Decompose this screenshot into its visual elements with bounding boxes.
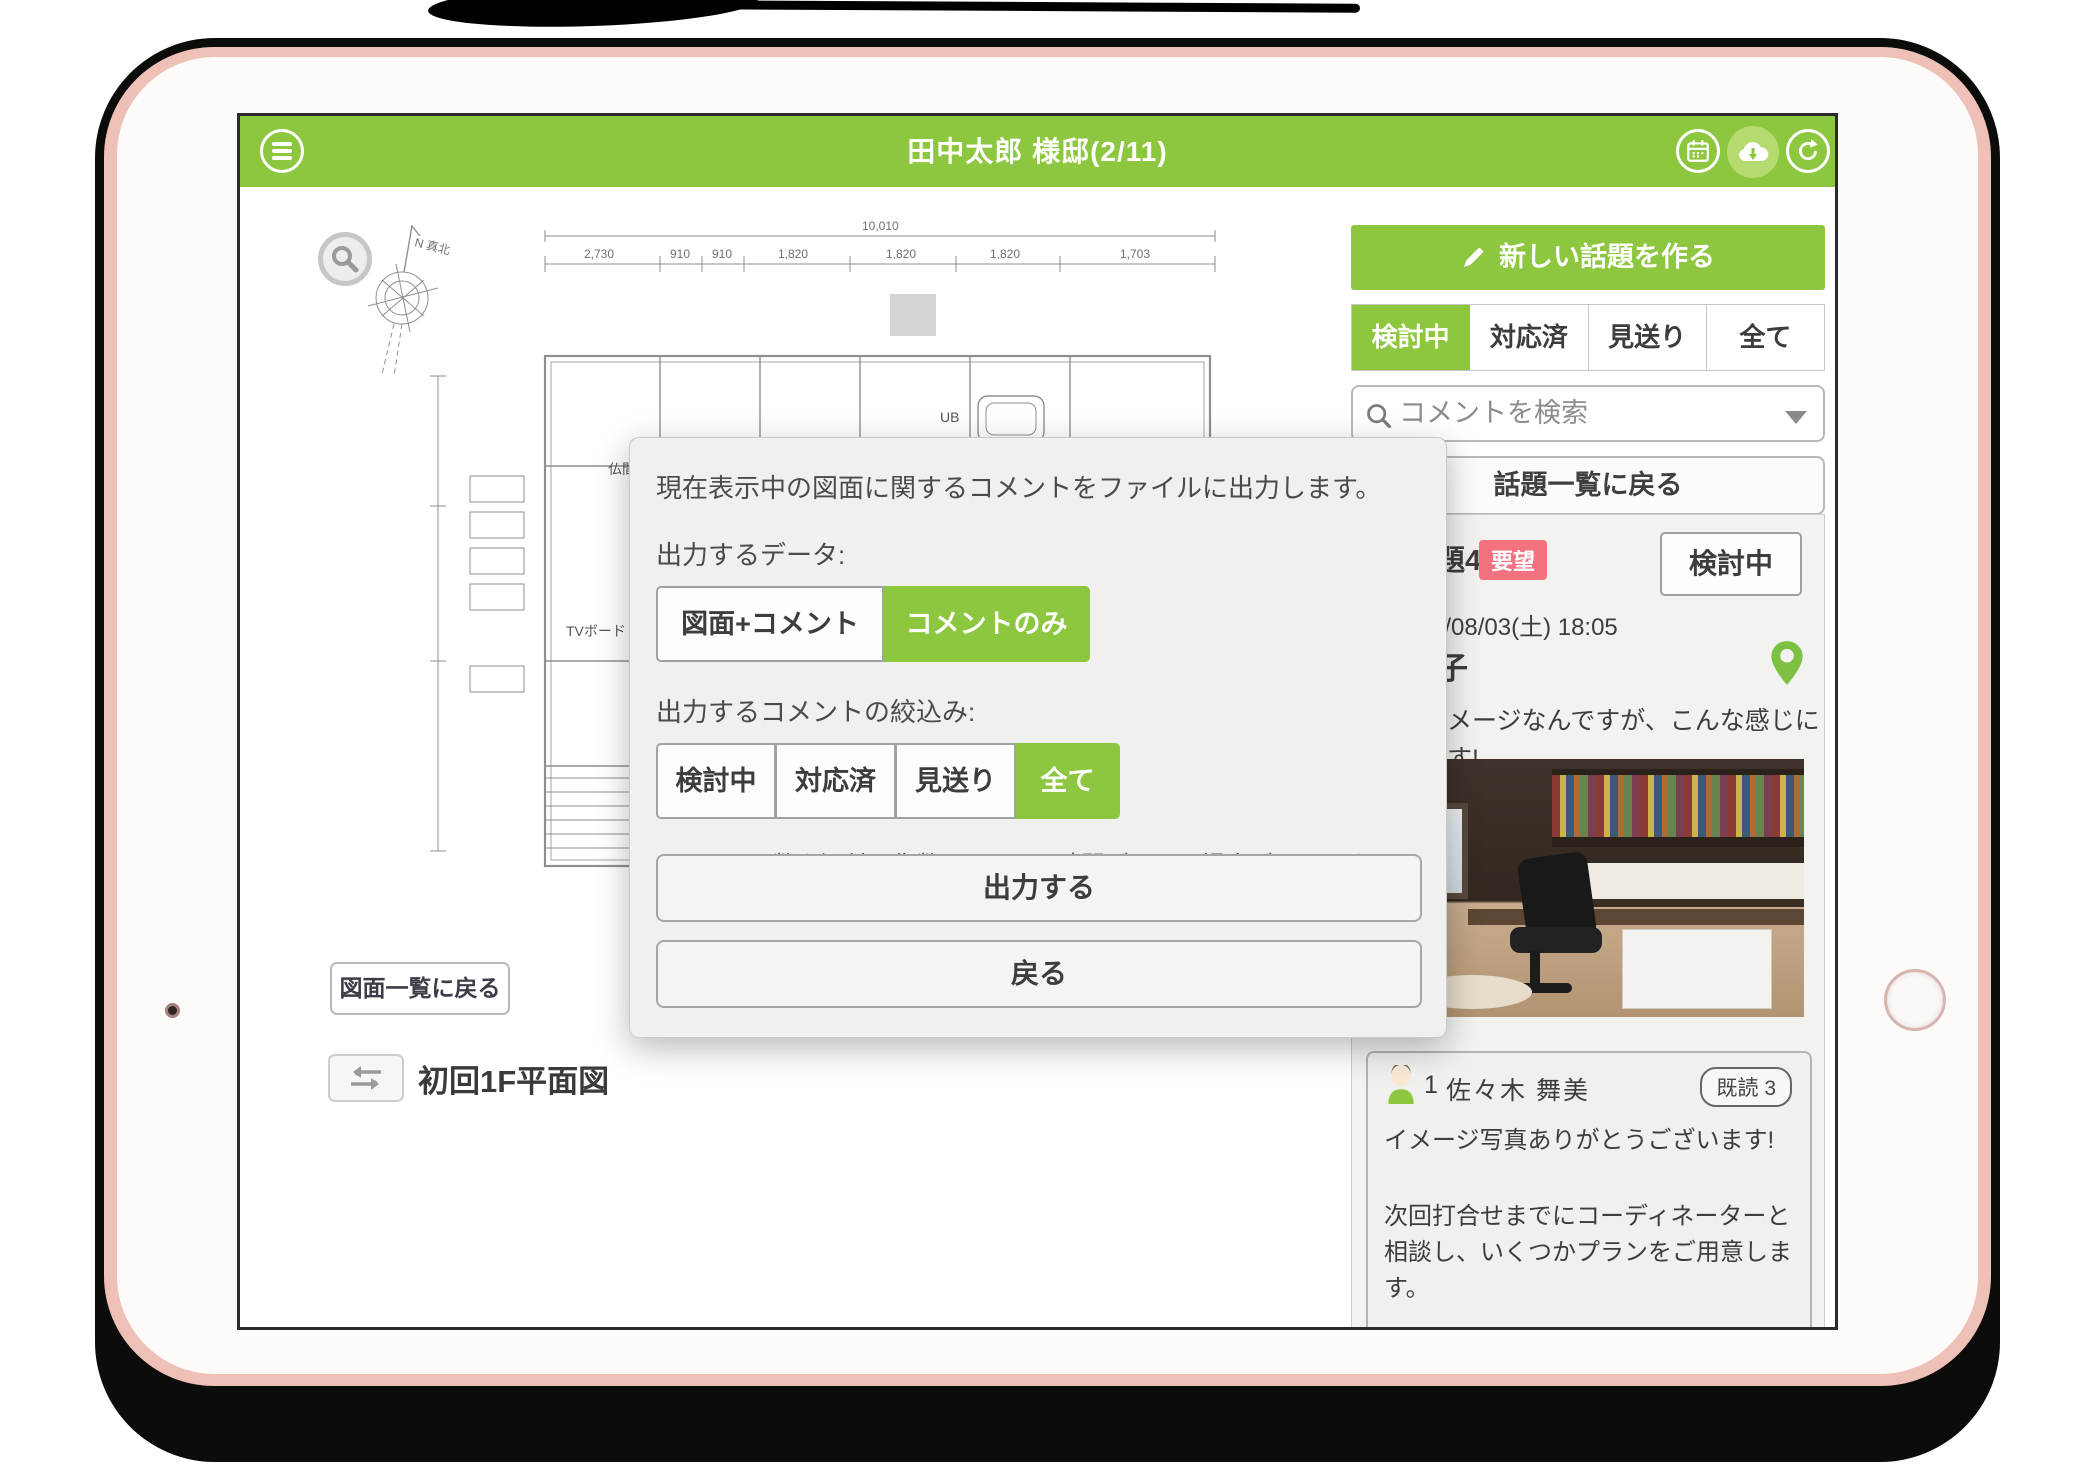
calendar-icon[interactable] [1676, 129, 1720, 173]
plan-room-label: UB [940, 409, 959, 425]
export-dialog: 現在表示中の図面に関するコメントをファイルに出力します。 出力するデータ: 図面… [629, 437, 1447, 1038]
plan-dimension: 1,820 [778, 247, 808, 261]
pencil-icon [1461, 246, 1485, 270]
comment-paragraph: 次回打合せまでにコーディネーターと相談し、いくつかプランをご用意します。 [1384, 1199, 1794, 1307]
export-filter-options: 検討中 対応済 見送り 全て [656, 743, 1420, 819]
comment-author: 佐々木 舞美 [1446, 1071, 1590, 1107]
search-input[interactable] [1397, 391, 1777, 436]
plan-dimension: 1,820 [990, 247, 1020, 261]
person-avatar-icon [1384, 1065, 1418, 1105]
tab-postponed[interactable]: 見送り [1589, 305, 1707, 370]
photo-chair [1530, 951, 1540, 987]
plan-room-label: TVボード [566, 623, 626, 639]
plan-dimension: 1,820 [886, 247, 916, 261]
plan-dimension: 2,730 [584, 247, 614, 261]
export-confirm-button[interactable]: 出力する [656, 854, 1422, 922]
photo-shelf [1572, 863, 1804, 907]
back-to-drawings-button[interactable]: 図面一覧に戻る [330, 962, 510, 1015]
plan-dimension: 1,703 [1120, 247, 1150, 261]
filter-resolved[interactable]: 対応済 [776, 743, 896, 819]
tab-resolved[interactable]: 対応済 [1470, 305, 1588, 370]
filter-all[interactable]: 全て [1016, 743, 1120, 819]
plan-dimension: 910 [670, 247, 690, 261]
request-badge: 要望 [1479, 540, 1547, 580]
topic-body-line: メージなんですが、こんな感じに [1447, 701, 1820, 737]
hamburger-menu-icon[interactable] [260, 129, 304, 173]
plan-dimension: 910 [712, 247, 732, 261]
export-data-label: 出力するデータ: [656, 535, 1420, 572]
hamburger-bar [272, 142, 292, 146]
plan-highlight-block [890, 294, 936, 336]
photo-cabinet [1622, 929, 1772, 1009]
tab-under-review[interactable]: 検討中 [1352, 305, 1470, 370]
cloud-download-icon[interactable] [1727, 126, 1779, 178]
chevron-down-icon[interactable] [1785, 411, 1807, 424]
topic-status-button[interactable]: 検討中 [1660, 532, 1802, 596]
hamburger-bar [272, 156, 292, 160]
plan-zoom-icon[interactable] [318, 232, 372, 286]
swap-drawing-icon[interactable] [328, 1054, 404, 1102]
option-plan-plus-comments[interactable]: 図面+コメント [656, 586, 884, 662]
comment-card: 1 佐々木 舞美 既読 3 イメージ写真ありがとうございます! 次回打合せまでに… [1366, 1051, 1812, 1330]
topic-date: 4/08/03(土) 18:05 [1431, 607, 1618, 642]
hamburger-bar [272, 149, 292, 153]
plan-compass-label: N 真北 [413, 235, 451, 257]
tab-all[interactable]: 全て [1707, 305, 1824, 370]
comment-header: 1 佐々木 舞美 既読 3 [1384, 1065, 1794, 1109]
new-topic-button[interactable]: 新しい話題を作る [1351, 225, 1825, 290]
app-screen: 田中太郎 様邸(2/11) [237, 113, 1838, 1330]
tablet-home-button[interactable] [1884, 969, 1946, 1031]
new-topic-label: 新しい話題を作る [1499, 242, 1715, 272]
filter-under-review[interactable]: 検討中 [656, 743, 776, 819]
photo-chair [1510, 927, 1602, 953]
search-icon [1365, 402, 1393, 430]
export-filter-label: 出力するコメントの絞込み: [656, 692, 1420, 729]
option-comments-only[interactable]: コメントのみ [884, 586, 1090, 662]
read-count-badge: 既読 3 [1700, 1067, 1792, 1107]
photo-bookshelf [1552, 769, 1804, 847]
sidebar: 新しい話題を作る 検討中 対応済 見送り 全て 話題一覧に戻る 題4 要望 [1351, 225, 1825, 290]
map-pin-icon[interactable] [1769, 639, 1805, 687]
drawing-title: 初回1F平面図 [418, 1056, 609, 1101]
topic-filter-tabs: 検討中 対応済 見送り 全て [1351, 304, 1825, 371]
export-data-options: 図面+コメント コメントのみ [656, 586, 1420, 662]
export-description: 現在表示中の図面に関するコメントをファイルに出力します。 [656, 468, 1420, 505]
plan-dimension: 10,010 [862, 219, 899, 233]
comment-paragraph: イメージ写真ありがとうございます! [1384, 1123, 1794, 1159]
page-title: 田中太郎 様邸(2/11) [240, 116, 1835, 187]
comment-search-box[interactable] [1351, 385, 1825, 442]
app-header: 田中太郎 様邸(2/11) [240, 116, 1835, 187]
tablet-camera [165, 1003, 180, 1018]
photo-shadow-line [700, 0, 1360, 12]
filter-postponed[interactable]: 見送り [896, 743, 1016, 819]
export-cancel-button[interactable]: 戻る [656, 940, 1422, 1008]
page: 田中太郎 様邸(2/11) [0, 0, 2084, 1464]
photo-desk [1468, 909, 1804, 925]
reload-icon[interactable] [1786, 129, 1830, 173]
comment-number: 1 [1424, 1071, 1438, 1100]
